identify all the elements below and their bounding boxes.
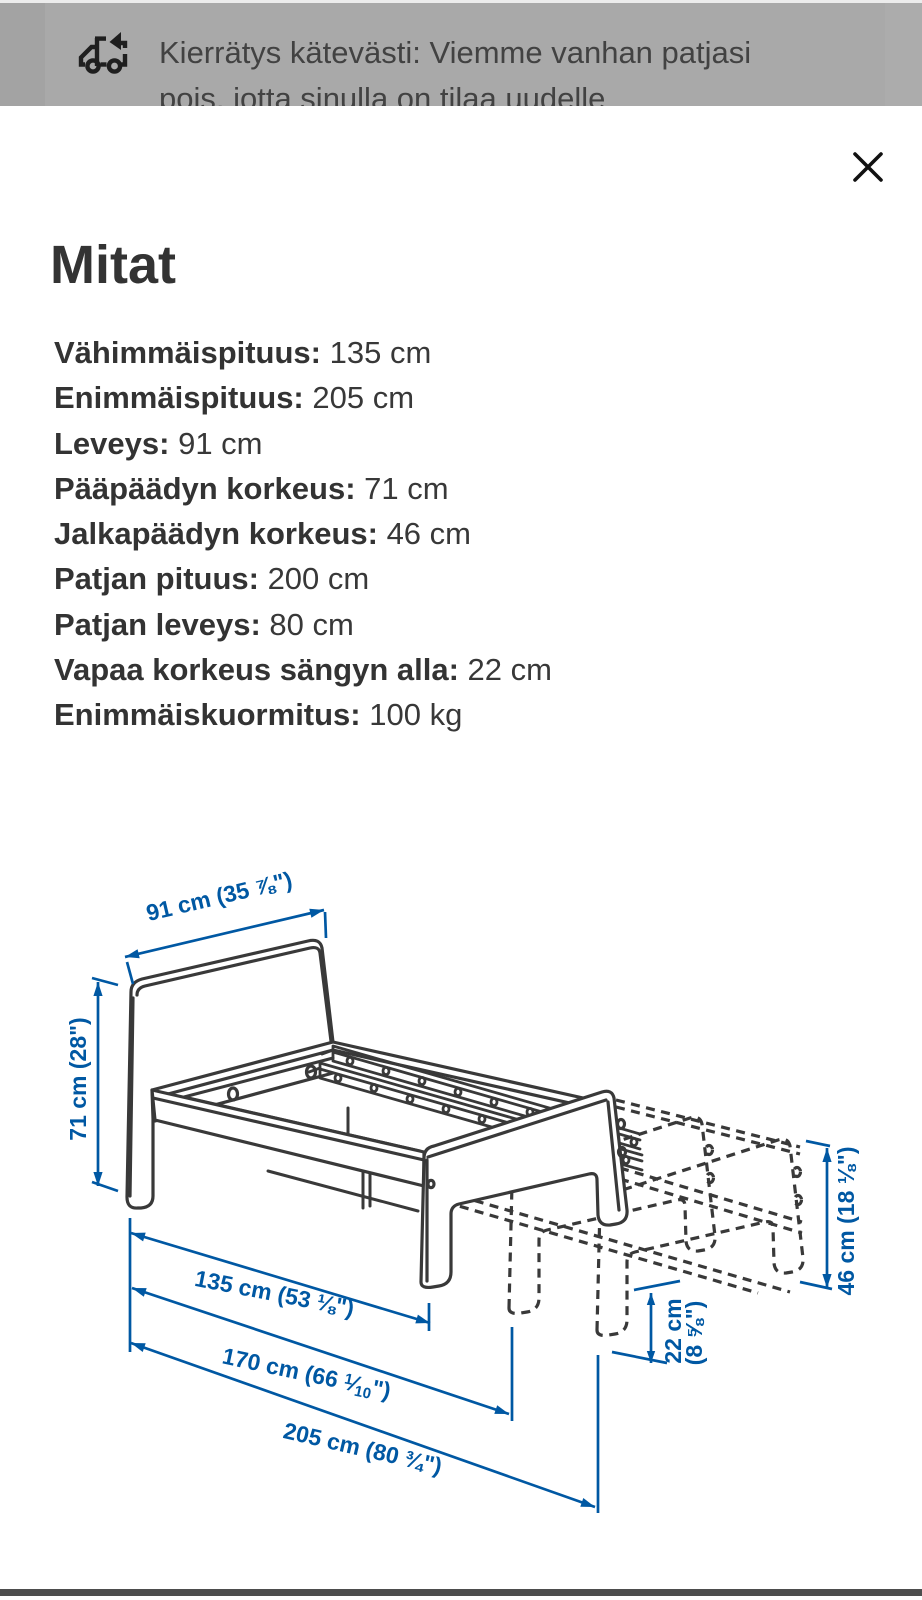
svg-text:205 cm (80 ¾"): 205 cm (80 ¾"): [281, 1417, 444, 1479]
svg-text:91 cm (35 ⅞"): 91 cm (35 ⅞"): [144, 866, 295, 926]
svg-text:135 cm (53 ⅛"): 135 cm (53 ⅛"): [193, 1265, 357, 1321]
svg-text:170 cm (66 1⁄10"): 170 cm (66 1⁄10"): [219, 1343, 393, 1407]
svg-text:46 cm (18 ⅛"): 46 cm (18 ⅛"): [833, 1147, 859, 1296]
svg-text:71 cm (28"): 71 cm (28"): [65, 1017, 91, 1140]
svg-text:(8 ⅝"): (8 ⅝"): [681, 1301, 707, 1366]
